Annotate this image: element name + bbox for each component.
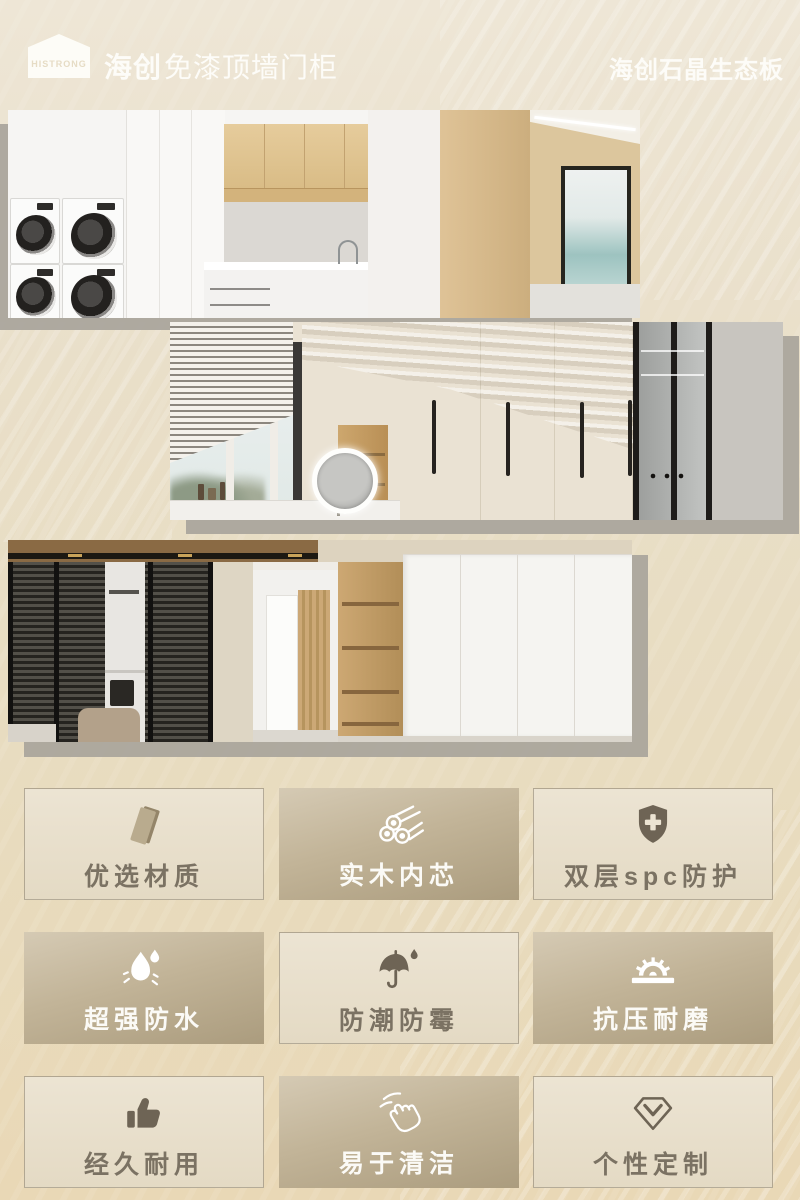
saw-blade-icon — [627, 942, 679, 994]
wood-slat-accent-wall — [298, 590, 330, 730]
page-title-left: 海创免漆顶墙门柜 — [104, 46, 338, 86]
white-wall — [368, 110, 440, 318]
feature-card-material: 优选材质 — [24, 788, 264, 900]
ceiling-slot — [8, 553, 318, 559]
cosmetic-bottle — [198, 484, 204, 500]
feature-label: 超强防水 — [84, 1000, 204, 1036]
page-title-right: 海创石晶生态板 — [609, 50, 784, 85]
feature-card-wood-core: 实木内芯 — [279, 788, 519, 900]
feature-label: 双层spc防护 — [564, 857, 742, 893]
hallway-floor — [530, 284, 640, 318]
table-corner — [8, 724, 56, 742]
feature-card-durable: 经久耐用 — [24, 1076, 264, 1188]
promo-page: HISTRONG 海创免漆顶墙门柜 海创石晶生态板 — [0, 0, 800, 1200]
base-cabinet — [204, 270, 368, 318]
white-interior-door — [266, 595, 298, 733]
feature-label: 实木内芯 — [339, 856, 459, 892]
product-line: 免漆顶墙门柜 — [164, 52, 338, 83]
glass-door-knobs — [647, 472, 687, 480]
gray-wall — [712, 322, 783, 520]
window-frame-post — [293, 342, 302, 514]
logs-icon — [373, 798, 425, 850]
photo-laundry-room — [8, 110, 640, 318]
logo-text: HISTRONG — [28, 59, 90, 69]
wood-shelf-column — [338, 562, 403, 742]
feature-card-custom: 个性定制 — [533, 1076, 773, 1188]
feature-card-easy-clean: 易于清洁 — [279, 1076, 519, 1188]
wardrobe-handle — [580, 402, 584, 478]
feature-card-wear-resistant: 抗压耐磨 — [533, 932, 773, 1044]
led-mirror — [312, 448, 378, 514]
wood-shelf — [224, 188, 368, 203]
wardrobe-handle — [432, 400, 436, 474]
feature-card-moisture-proof: 防潮防霉 — [279, 932, 519, 1044]
feature-card-spc-protection: 双层spc防护 — [533, 788, 773, 900]
feature-card-waterproof: 超强防水 — [24, 932, 264, 1044]
diamond-icon — [627, 1087, 679, 1139]
cosmetic-bottle — [220, 482, 225, 500]
light-rays-mid-left — [0, 322, 172, 542]
feature-label: 优选材质 — [84, 857, 204, 893]
wood-upper-cabinet — [224, 124, 368, 188]
dining-chair — [78, 708, 140, 742]
washer-top-left — [10, 198, 60, 264]
washer-top-right — [62, 198, 124, 264]
cosmetic-bottle — [208, 488, 216, 500]
hallway-floor — [253, 730, 338, 742]
shield-plus-icon — [627, 799, 679, 851]
wardrobe-handle — [506, 402, 510, 476]
floor-strip — [338, 736, 632, 742]
feature-label: 易于清洁 — [339, 1144, 459, 1180]
faucet — [338, 240, 358, 264]
photo-living-room — [8, 540, 632, 742]
thumbs-up-icon — [118, 1087, 170, 1139]
water-drops-icon — [118, 942, 170, 994]
board-icon — [118, 799, 170, 851]
brand-name: 海创 — [104, 52, 162, 83]
wardrobe-handle — [628, 400, 632, 476]
header: HISTRONG 海创免漆顶墙门柜 海创石晶生态板 — [0, 0, 800, 96]
white-wardrobe-cabinet — [403, 554, 632, 737]
wood-pillar — [440, 110, 530, 318]
feature-label: 抗压耐磨 — [593, 1000, 713, 1036]
washer-bottom-right — [62, 264, 124, 318]
feature-label: 个性定制 — [593, 1145, 713, 1181]
beige-wall-strip — [213, 562, 253, 742]
photo-dressing-area — [170, 322, 783, 520]
washer-bottom-left — [10, 264, 60, 318]
umbrella-drop-icon — [373, 943, 425, 995]
brand-house-logo-icon: HISTRONG — [28, 34, 90, 78]
feature-label: 防潮防霉 — [339, 1001, 459, 1037]
feature-label: 经久耐用 — [84, 1145, 204, 1181]
glass-cabinet-door — [633, 322, 712, 520]
sea-view-door — [561, 166, 631, 292]
wipe-hand-icon — [373, 1086, 425, 1138]
